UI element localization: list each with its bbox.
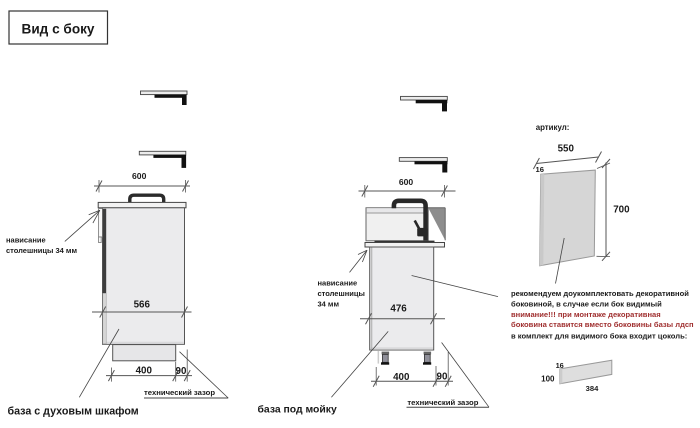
- svg-text:в комплект для видимого бока в: в комплект для видимого бока входит цоко…: [511, 332, 687, 341]
- svg-text:566: 566: [134, 299, 151, 310]
- svg-text:400: 400: [136, 365, 153, 376]
- svg-text:столешницы 34 мм: столешницы 34 мм: [6, 246, 77, 255]
- svg-text:нависание: нависание: [318, 279, 358, 288]
- svg-text:90: 90: [437, 371, 448, 382]
- svg-text:артикул:: артикул:: [536, 123, 570, 132]
- svg-text:нависание: нависание: [6, 236, 46, 245]
- svg-text:600: 600: [132, 171, 147, 181]
- svg-text:600: 600: [399, 177, 414, 187]
- svg-text:столешницы: столешницы: [318, 289, 365, 298]
- svg-text:боковина ставится вместо боков: боковина ставится вместо боковины базы л…: [511, 320, 694, 329]
- svg-text:технический зазор: технический зазор: [407, 398, 478, 407]
- svg-text:34 мм: 34 мм: [318, 300, 340, 309]
- svg-text:рекомендуем доукомплектовать д: рекомендуем доукомплектовать декоративно…: [511, 289, 689, 298]
- svg-text:476: 476: [390, 304, 407, 315]
- svg-text:внимание!!! при монтаже декора: внимание!!! при монтаже декоративная: [511, 310, 661, 319]
- svg-text:база под мойку: база под мойку: [258, 404, 337, 416]
- svg-text:технический зазор: технический зазор: [144, 388, 215, 397]
- svg-text:боковиной, в случае если бок в: боковиной, в случае если бок видимый: [511, 300, 662, 309]
- svg-text:550: 550: [558, 143, 575, 154]
- svg-text:Вид с боку: Вид с боку: [22, 22, 95, 37]
- svg-text:400: 400: [393, 372, 410, 383]
- svg-text:16: 16: [536, 165, 544, 174]
- svg-text:база с духовым шкафом: база с духовым шкафом: [8, 406, 139, 418]
- svg-text:700: 700: [613, 205, 630, 216]
- svg-text:16: 16: [556, 361, 564, 370]
- svg-text:384: 384: [586, 384, 599, 393]
- svg-text:100: 100: [541, 374, 555, 383]
- svg-text:90: 90: [176, 366, 187, 377]
